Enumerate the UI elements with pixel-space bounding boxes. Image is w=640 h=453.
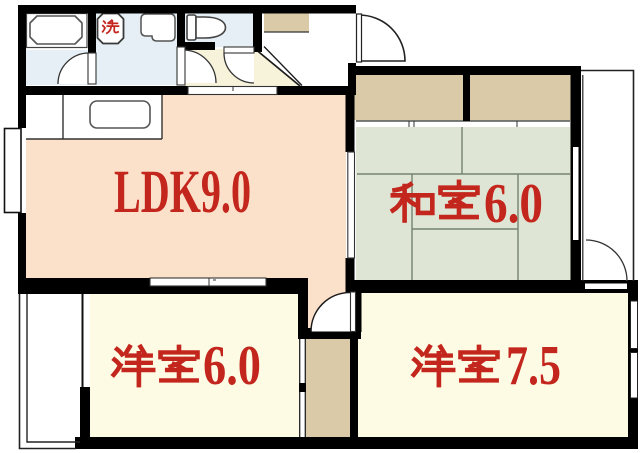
svg-text:6.0: 6.0 xyxy=(484,173,543,235)
svg-text:LDK9.0: LDK9.0 xyxy=(114,159,251,226)
svg-text:6.0: 6.0 xyxy=(203,335,261,397)
svg-text:7.5: 7.5 xyxy=(506,335,561,397)
